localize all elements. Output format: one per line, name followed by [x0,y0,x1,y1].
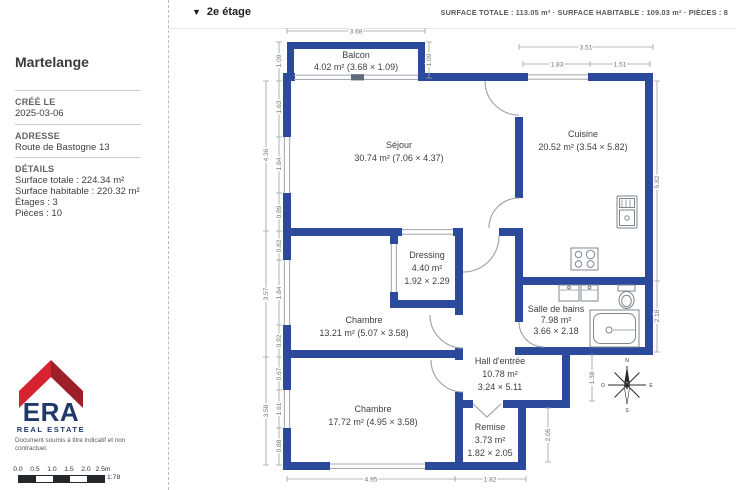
dim-label: 1.09 [426,53,433,66]
dim-label: 0.92 [276,334,283,347]
dim-label: 1.38 [589,371,596,384]
floorplan-page: Martelange CRÉÉ LE 2025-03-06 ADRESSE Ro… [0,0,736,490]
dim-label: 4.95 [365,477,378,484]
dim-label: 1.84 [276,157,283,170]
room-area-balcon: 4.02 m² (3.68 × 1.09) [314,62,398,72]
room-area-chambre1: 13.21 m² (5.07 × 3.58) [319,328,408,338]
dim-label: 3.58 [263,404,270,417]
dim-label: 5.82 [654,175,661,188]
room-area-chambre2: 17.72 m² (4.95 × 3.58) [328,417,417,427]
room-name-sdb: Salle de bains [528,304,585,314]
dim-label: 1.82 [484,477,497,484]
dim-label: 3.57 [263,287,270,300]
dim-label: 2.18 [654,309,661,322]
floorplan-drawing: 3.68 3.51 1.83 1.51 1.09 1.63 1.84 0.89 … [0,0,736,490]
room-size-dressing: 1.92 × 2.29 [404,276,449,286]
cooktop-icon [571,248,598,270]
room-area-dressing: 4.40 m² [412,263,443,273]
room-name-cuisine: Cuisine [568,129,598,139]
dim-label: 0.67 [276,367,283,380]
room-name-hall: Hall d'entrée [475,356,525,366]
compass-rose-icon: N S E O [601,358,653,414]
dim-label: 0.88 [276,439,283,452]
compass-n: N [625,358,629,364]
kitchen-sink-icon [617,196,637,228]
dim-label: 1.51 [614,62,627,69]
dim-label: 0.89 [276,205,283,218]
dim-label: 0.82 [276,239,283,252]
room-area-sdb: 7.98 m² [541,315,572,325]
dim-label: 1.61 [276,402,283,415]
room-name-remise: Remise [475,422,506,432]
dim-label: 4.36 [263,148,270,161]
dim-label: 3.68 [350,29,363,36]
room-size-hall: 3.24 × 5.11 [478,382,523,392]
dim-label: 1.09 [276,54,283,67]
room-name-dressing: Dressing [409,250,445,260]
room-area-cuisine: 20.52 m² (3.54 × 5.82) [538,142,627,152]
folding-door-icon [473,404,501,417]
room-name-balcon: Balcon [342,50,370,60]
dim-label: 3.51 [580,45,593,52]
compass-s: S [625,408,629,414]
toilet-icon [618,285,635,309]
dim-label: 2.05 [545,428,552,441]
room-name-chambre2: Chambre [354,404,391,414]
bathtub-icon [590,310,639,347]
room-area-hall: 10.78 m² [482,369,518,379]
room-name-sejour: Séjour [386,140,412,150]
washbasin-icon [559,285,598,301]
room-size-remise: 1.82 × 2.05 [467,448,512,458]
dim-label: 1.84 [276,286,283,299]
room-area-remise: 3.73 m² [475,435,506,445]
room-area-sejour: 30.74 m² (7.06 × 4.37) [354,153,443,163]
room-size-sdb: 3.66 × 2.18 [533,326,578,336]
compass-w: O [601,383,605,389]
doors [430,81,544,417]
compass-e: E [649,383,653,389]
room-name-chambre1: Chambre [345,315,382,325]
dim-label: 1.63 [276,100,283,113]
dim-label: 1.83 [551,62,564,69]
